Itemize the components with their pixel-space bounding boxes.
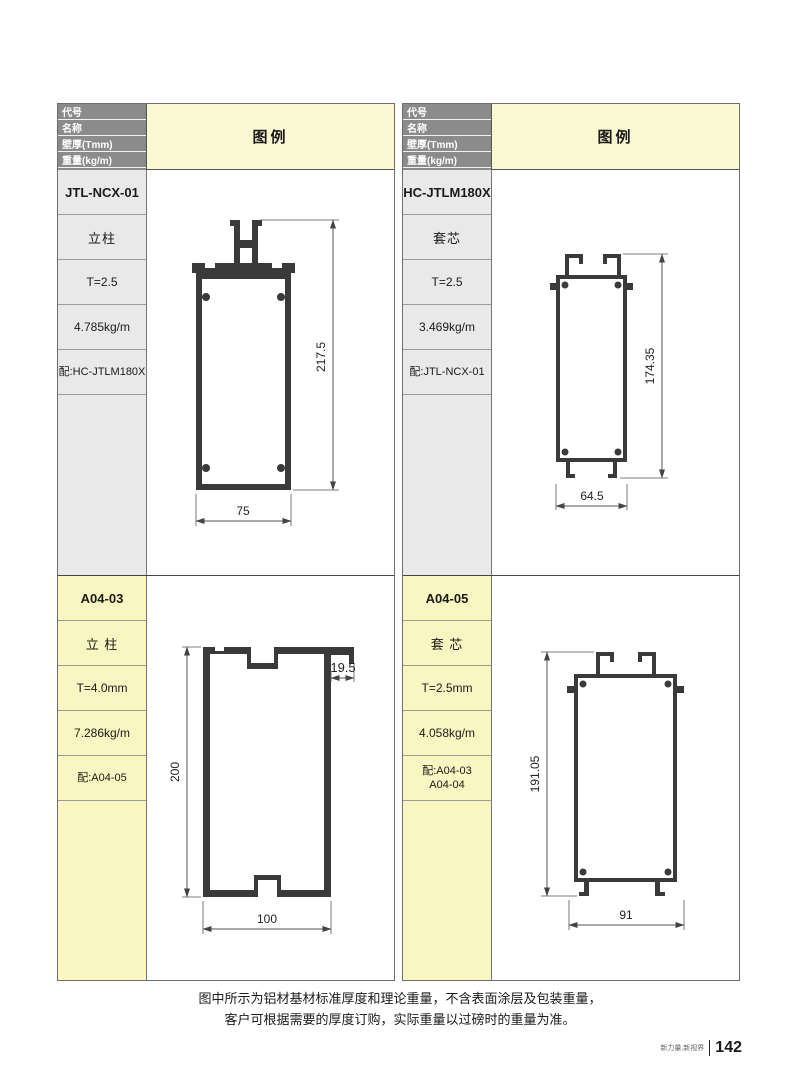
- matching-profile-line2: A04-04: [429, 778, 464, 792]
- panel-header: 代号 名称 壁厚(Tmm) 重量(kg/m) 配套 图例: [58, 104, 394, 170]
- profile-diagram: 191.05 91: [492, 576, 739, 980]
- unit-weight: 4.058kg/m: [403, 711, 491, 756]
- spec-filler: [58, 395, 146, 575]
- footnote: 图中所示为铝材基材标准厚度和理论重量，不含表面涂层及包装重量， 客户可根据需要的…: [0, 988, 800, 1030]
- profile-diagram: 19.5 200 100: [147, 576, 394, 980]
- wall-thickness: T=2.5mm: [403, 666, 491, 711]
- matching-profile: 配:A04-03 A04-04: [403, 756, 491, 801]
- header-thickness-label: 壁厚(Tmm): [58, 136, 146, 152]
- dim-height-label: 200: [168, 762, 182, 782]
- profile-code: A04-05: [403, 576, 491, 621]
- footnote-line2: 客户可根据需要的厚度订购，实际重量以过磅时的重量为准。: [0, 1009, 800, 1030]
- matching-profile: 配:HC-JTLM180X: [58, 350, 146, 395]
- header-label-column: 代号 名称 壁厚(Tmm) 重量(kg/m) 配套: [403, 104, 492, 169]
- spec-label-column: A04-03 立 柱 T=4.0mm 7.286kg/m 配:A04-05: [58, 576, 147, 980]
- profile-diagram: 174.35 64.5: [492, 170, 739, 575]
- matching-profile-line1: 配:A04-03: [422, 764, 472, 778]
- spec-filler: [58, 801, 146, 980]
- spec-label-column: HC-JTLM180X 套芯 T=2.5 3.469kg/m 配:JTL-NCX…: [403, 170, 492, 575]
- spec-label-column: A04-05 套 芯 T=2.5mm 4.058kg/m 配:A04-03 A0…: [403, 576, 492, 980]
- spec-filler: [403, 395, 491, 575]
- dim-height-label: 174.35: [643, 347, 657, 384]
- legend-header: 图例: [492, 104, 739, 169]
- page-footer: 新力量,新视界 142: [660, 1040, 742, 1056]
- profile-code: HC-JTLM180X: [403, 170, 491, 215]
- dim-width-label: 64.5: [580, 489, 604, 503]
- dim-width-label: 100: [257, 912, 277, 926]
- dim-width-label: 91: [619, 908, 633, 922]
- footnote-line1: 图中所示为铝材基材标准厚度和理论重量，不含表面涂层及包装重量，: [0, 988, 800, 1009]
- wall-thickness: T=4.0mm: [58, 666, 146, 711]
- header-code-label: 代号: [403, 104, 491, 120]
- legend-header: 图例: [147, 104, 394, 169]
- profile-name: 套 芯: [403, 621, 491, 666]
- catalog-page: 代号 名称 壁厚(Tmm) 重量(kg/m) 配套 图例 JTL-NCX-01 …: [0, 0, 800, 1085]
- dim-width-label: 75: [236, 504, 250, 518]
- header-weight-label: 重量(kg/m): [58, 152, 146, 168]
- profile-drawing-hc-jtlm180x: 174.35 64.5: [492, 170, 743, 575]
- spec-filler: [403, 801, 491, 980]
- profile-code: A04-03: [58, 576, 146, 621]
- brand-slogan: 新力量,新视界: [660, 1043, 704, 1053]
- dim-height-label: 191.05: [528, 755, 542, 792]
- page-number: 142: [709, 1040, 742, 1056]
- profile-name: 立柱: [58, 215, 146, 260]
- header-code-label: 代号: [58, 104, 146, 120]
- wall-thickness: T=2.5: [403, 260, 491, 305]
- wall-thickness: T=2.5: [58, 260, 146, 305]
- unit-weight: 7.286kg/m: [58, 711, 146, 756]
- header-name-label: 名称: [403, 120, 491, 136]
- header-label-column: 代号 名称 壁厚(Tmm) 重量(kg/m) 配套: [58, 104, 147, 169]
- header-weight-label: 重量(kg/m): [403, 152, 491, 168]
- dim-height-label: 217.5: [314, 342, 328, 372]
- profile-section-a04-03: A04-03 立 柱 T=4.0mm 7.286kg/m 配:A04-05: [58, 576, 394, 980]
- matching-profile: 配:JTL-NCX-01: [403, 350, 491, 395]
- dim-lip-label: 19.5: [330, 660, 355, 675]
- profile-drawing-a04-03: 19.5 200 100: [147, 576, 395, 982]
- spec-panel-left: 代号 名称 壁厚(Tmm) 重量(kg/m) 配套 图例 JTL-NCX-01 …: [57, 103, 395, 981]
- panel-header: 代号 名称 壁厚(Tmm) 重量(kg/m) 配套 图例: [403, 104, 739, 170]
- unit-weight: 4.785kg/m: [58, 305, 146, 350]
- spec-label-column: JTL-NCX-01 立柱 T=2.5 4.785kg/m 配:HC-JTLM1…: [58, 170, 147, 575]
- profile-drawing-a04-05: 191.05 91: [492, 576, 743, 982]
- matching-profile: 配:A04-05: [58, 756, 146, 801]
- header-name-label: 名称: [58, 120, 146, 136]
- profile-name: 套芯: [403, 215, 491, 260]
- spec-panel-right: 代号 名称 壁厚(Tmm) 重量(kg/m) 配套 图例 HC-JTLM180X…: [402, 103, 740, 981]
- header-thickness-label: 壁厚(Tmm): [403, 136, 491, 152]
- profile-code: JTL-NCX-01: [58, 170, 146, 215]
- unit-weight: 3.469kg/m: [403, 305, 491, 350]
- profile-diagram: 217.5 75: [147, 170, 394, 575]
- profile-name: 立 柱: [58, 621, 146, 666]
- profile-drawing-jtl-ncx-01: 217.5 75: [147, 170, 395, 575]
- profile-section-a04-05: A04-05 套 芯 T=2.5mm 4.058kg/m 配:A04-03 A0…: [403, 576, 739, 980]
- profile-section-hc-jtlm180x: HC-JTLM180X 套芯 T=2.5 3.469kg/m 配:JTL-NCX…: [403, 170, 739, 576]
- profile-section-jtl-ncx-01: JTL-NCX-01 立柱 T=2.5 4.785kg/m 配:HC-JTLM1…: [58, 170, 394, 576]
